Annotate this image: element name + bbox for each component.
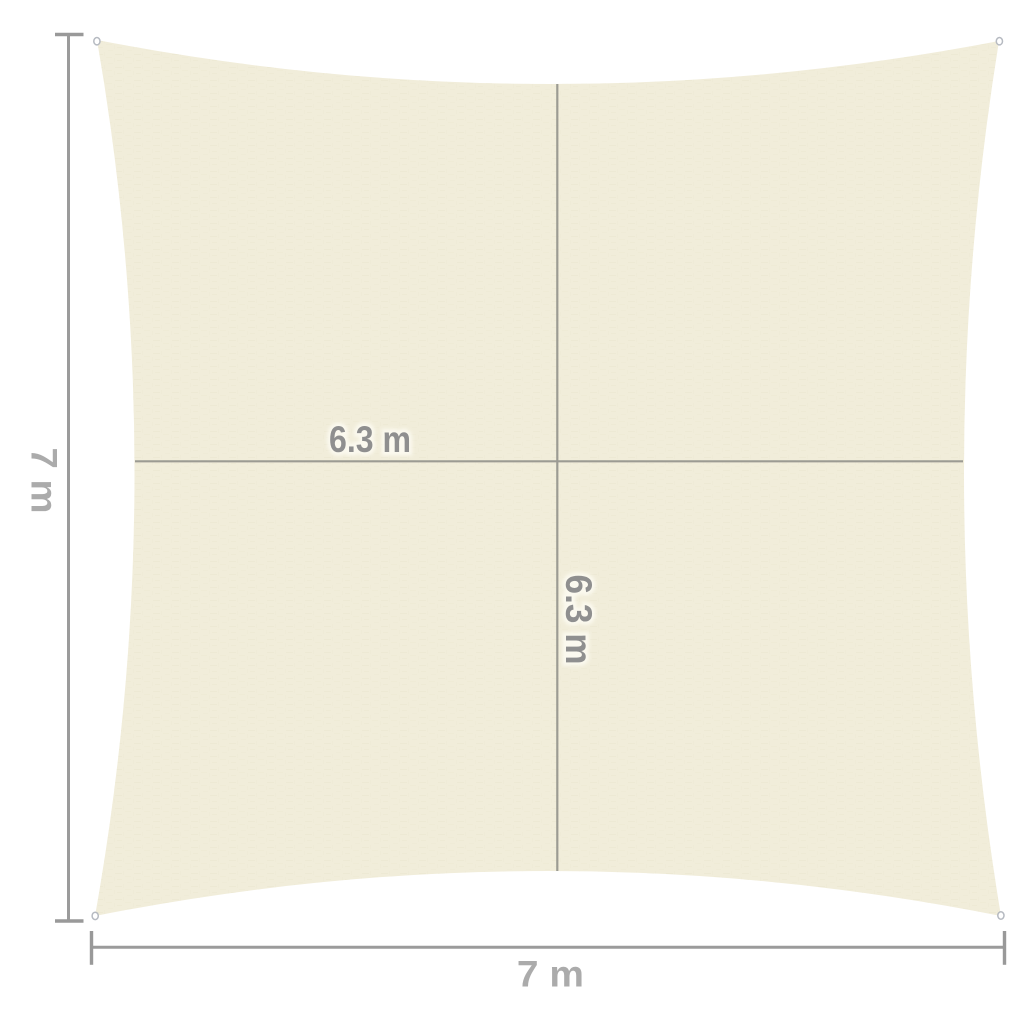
- svg-text:7 m: 7 m: [24, 448, 65, 514]
- svg-text:6.3 m: 6.3 m: [329, 419, 411, 460]
- svg-text:7 m: 7 m: [517, 954, 584, 995]
- svg-text:6.3 m: 6.3 m: [558, 575, 599, 665]
